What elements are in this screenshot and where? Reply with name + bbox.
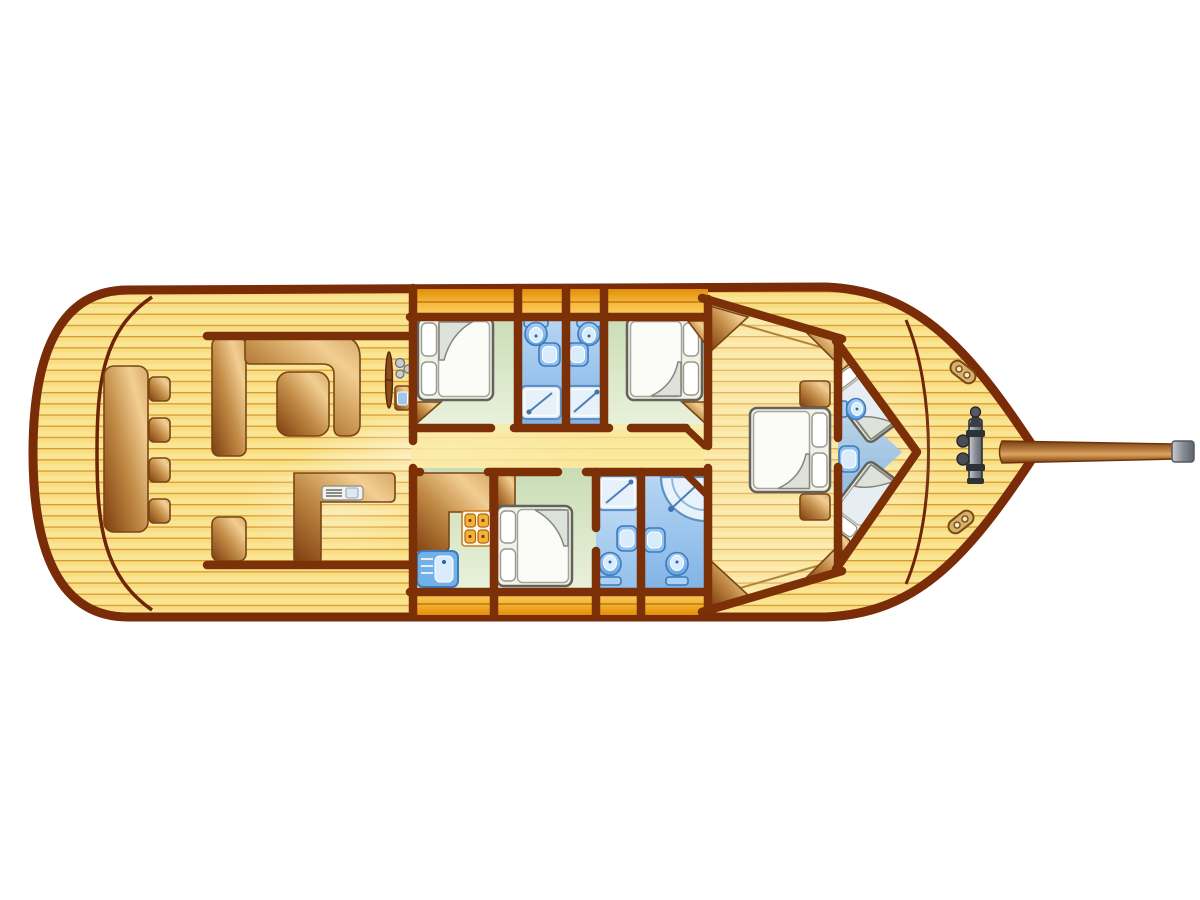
shower-tray <box>521 386 561 419</box>
bowsprit-cap <box>1172 441 1194 462</box>
pillow <box>812 413 827 447</box>
toilet <box>577 319 601 346</box>
double-bed <box>750 408 830 492</box>
double-bed <box>627 318 702 400</box>
cabinet-panel <box>212 338 246 456</box>
toilet <box>524 319 548 346</box>
washbasin <box>539 343 560 366</box>
stool <box>149 458 170 482</box>
toilet <box>599 553 621 586</box>
pillow <box>501 511 516 543</box>
pillow <box>422 323 437 356</box>
washbasin <box>617 526 637 551</box>
stool <box>149 377 170 401</box>
instrument-gauge-icon <box>396 359 405 368</box>
shower-tray <box>598 476 638 510</box>
stool <box>149 499 170 523</box>
aft-seat <box>212 517 246 561</box>
double-bed <box>497 506 572 586</box>
dining-table <box>104 366 148 532</box>
radio-unit <box>322 486 363 500</box>
side-band-top <box>409 289 708 315</box>
pillow <box>501 549 516 581</box>
pillow <box>422 362 437 395</box>
stool <box>149 418 170 442</box>
yacht-deck-plan <box>0 0 1200 900</box>
shower-tray <box>566 386 605 419</box>
coffee-table <box>277 372 329 436</box>
bowsprit <box>1000 441 1175 463</box>
deck-plan-canvas <box>0 0 1200 900</box>
nightstand <box>800 494 830 520</box>
nightstand <box>800 381 830 407</box>
toilet <box>840 399 866 420</box>
washbasin <box>644 528 665 552</box>
pillow <box>684 362 699 395</box>
stove <box>462 511 491 546</box>
instrument-gauge-icon <box>396 370 404 378</box>
chart-display-icon <box>398 392 408 405</box>
toilet <box>666 553 688 586</box>
galley-sink <box>417 551 458 587</box>
pillow <box>812 453 827 487</box>
double-bed <box>418 318 493 400</box>
